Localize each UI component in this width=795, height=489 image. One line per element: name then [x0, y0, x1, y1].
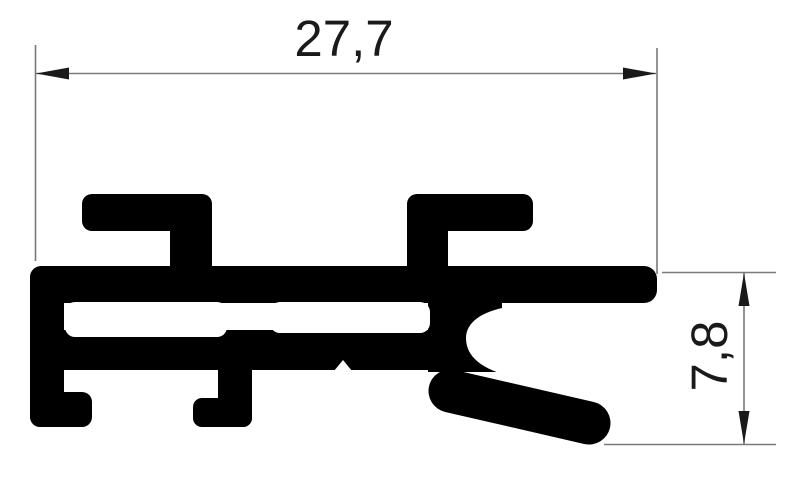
- profile-shape: [30, 194, 720, 448]
- profile-slot-left: [65, 302, 227, 337]
- arrowhead-up-icon: [739, 273, 750, 306]
- profile-left-foot: [30, 392, 92, 427]
- profile-lower-prong: [450, 391, 589, 423]
- arrowhead-right-icon: [623, 68, 656, 80]
- arrowhead-down-icon: [739, 411, 750, 444]
- profile-cutouts: [64, 302, 720, 448]
- profile-hook-right-stem: [407, 218, 448, 270]
- width-dimension-lines: [36, 45, 658, 274]
- width-dimension: 27,7: [36, 10, 658, 274]
- width-dimension-label: 27,7: [294, 10, 393, 67]
- height-dimension-label: 7,8: [681, 321, 738, 392]
- profile-slot-right: [270, 302, 430, 333]
- profile-hook-left-stem: [170, 218, 212, 270]
- arrowhead-left-icon: [36, 68, 69, 80]
- technical-drawing-canvas: 27,7 7,8: [0, 0, 795, 489]
- profile-middle-foot: [193, 398, 252, 427]
- profile-drawing-svg: 27,7 7,8: [0, 0, 795, 489]
- profile-main-bar: [30, 266, 657, 303]
